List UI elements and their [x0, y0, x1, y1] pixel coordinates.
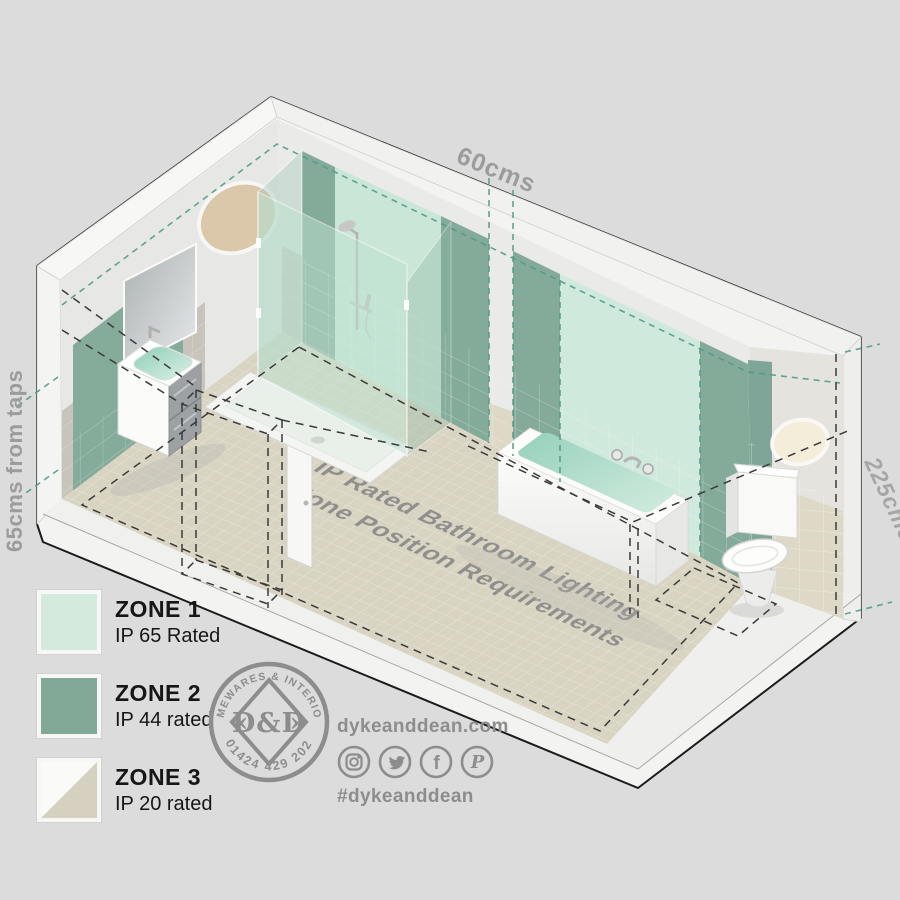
social-block: dykeanddean.com f — [337, 716, 527, 808]
zone3-name: ZONE 3 — [115, 763, 212, 792]
infographic-poster: IP Rated Bathroom Lighting Zone Position… — [0, 0, 900, 900]
dimension-label-left: 65cms from taps — [2, 370, 27, 552]
twitter-icon — [378, 745, 412, 779]
zone-legend: ZONE 1 IP 65 Rated ZONE 2 IP 44 rated ZO… — [37, 590, 220, 842]
zone2-swatch — [37, 674, 101, 738]
zone2-name: ZONE 2 — [115, 679, 212, 708]
zone1-swatch — [37, 590, 101, 654]
zone3-swatch — [37, 758, 101, 822]
svg-text:f: f — [433, 753, 440, 774]
zone2-rating: IP 44 rated — [115, 708, 212, 733]
zone1-name: ZONE 1 — [115, 595, 220, 624]
dimension-label-right: 225cms — [859, 452, 900, 546]
legend-item-zone3: ZONE 3 IP 20 rated — [37, 758, 220, 822]
website-text: dykeanddean.com — [337, 716, 527, 738]
legend-item-zone2: ZONE 2 IP 44 rated — [37, 674, 220, 738]
zone3-rating: IP 20 rated — [115, 792, 212, 817]
pinterest-icon: P — [460, 745, 494, 779]
instagram-icon — [337, 745, 371, 779]
brand-logo: HOMEWARES & INTERIORS 01424 429 202 ‹ › … — [203, 654, 335, 790]
legend-item-zone1: ZONE 1 IP 65 Rated — [37, 590, 220, 654]
zone1-rating: IP 65 Rated — [115, 624, 220, 649]
facebook-icon: f — [419, 745, 453, 779]
svg-text:P: P — [470, 752, 485, 773]
logo-monogram: D&D — [232, 708, 306, 739]
hashtag-text: #dykeanddean — [337, 786, 527, 808]
